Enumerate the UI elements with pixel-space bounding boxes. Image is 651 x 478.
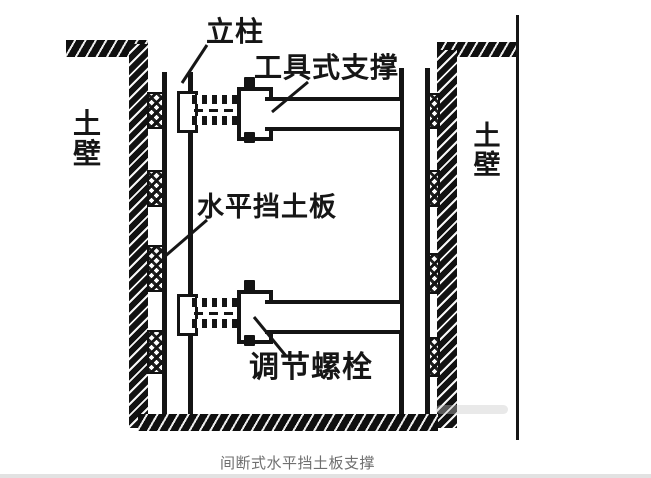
diagram-canvas: 立柱 工具式支撑 土壁 土壁 水平挡土板 调节螺栓 间断式水平挡土板支撑 <box>0 0 651 478</box>
page-divider <box>0 474 651 478</box>
figure-caption: 间断式水平挡土板支撑 <box>220 452 375 473</box>
label-adjust-bolt: 调节螺栓 <box>249 352 373 384</box>
label-tool-strut: 工具式支撑 <box>254 54 399 83</box>
leader-line-column <box>182 45 207 83</box>
label-soil-wall-right: 土壁 <box>471 122 503 179</box>
leader-line-tool-strut <box>272 82 308 112</box>
label-soil-wall-left: 土壁 <box>71 110 103 169</box>
leader-line-horizontal-board <box>163 220 207 258</box>
watermark-smudge <box>436 405 508 414</box>
label-horizontal-board: 水平挡土板 <box>197 193 337 221</box>
label-column: 立柱 <box>206 18 264 47</box>
